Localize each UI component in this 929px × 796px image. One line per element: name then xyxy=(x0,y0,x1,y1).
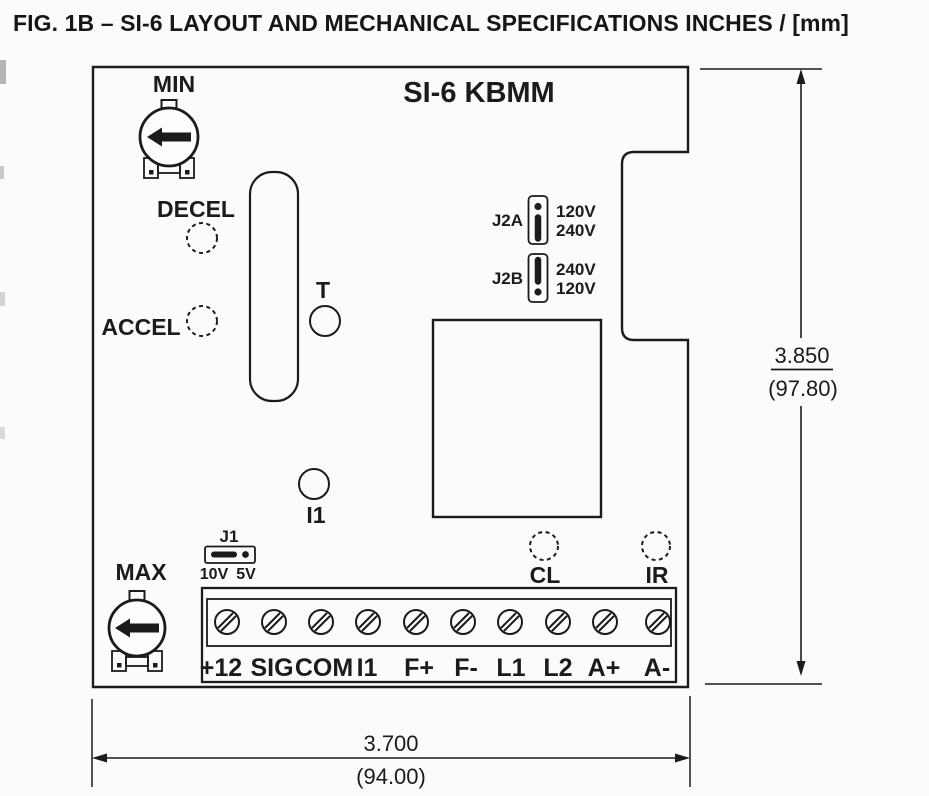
terminal-screw-icon xyxy=(498,610,522,634)
width-mm: (94.00) xyxy=(356,764,426,789)
accel-trimpot-hole: ACCEL xyxy=(101,306,217,340)
figure-page: FIG. 1B – SI-6 LAYOUT AND MECHANICAL SPE… xyxy=(0,0,929,796)
j2b-jumper: J2B 240V 120V xyxy=(492,254,597,302)
scan-smudge xyxy=(0,427,5,439)
j2b-label: J2B xyxy=(492,269,523,288)
height-mm: (97.80) xyxy=(768,376,838,401)
scan-smudge xyxy=(0,166,4,179)
cl-label: CL xyxy=(530,562,561,588)
decel-trimpot-hole: DECEL xyxy=(157,196,235,253)
terminal-label: L1 xyxy=(496,654,525,682)
terminal-strip: +12 SIG COM I1 F+ F- L1 L2 A+ A- xyxy=(200,588,676,682)
ir-trimpot-hole: IR xyxy=(642,532,670,588)
transformer-outline xyxy=(433,320,601,517)
accel-label: ACCEL xyxy=(101,314,180,340)
j2b-pin-dot xyxy=(534,288,541,295)
pot-bracket xyxy=(126,657,148,666)
terminal-screw-icon xyxy=(215,610,239,634)
t-circle xyxy=(310,306,340,336)
terminal-label: I1 xyxy=(357,654,378,682)
scan-smudge xyxy=(0,60,6,84)
j1-jumper: J1 10V 5V xyxy=(200,527,256,583)
pot-leg-hole xyxy=(149,170,154,175)
board-name: SI-6 KBMM xyxy=(403,77,554,109)
terminal-screw-icon xyxy=(309,610,333,634)
terminal-screw-icon xyxy=(356,610,380,634)
j1-left-option: 10V xyxy=(200,566,229,583)
i1-circle xyxy=(299,469,329,499)
pot-leg-hole xyxy=(117,663,122,668)
decel-circle xyxy=(187,223,217,253)
terminal-label: F- xyxy=(454,654,478,682)
width-dimension: 3.700 (94.00) xyxy=(92,696,690,789)
down-arrow-icon xyxy=(797,661,806,676)
terminal-screw-icon xyxy=(404,610,428,634)
j2b-bottom-option: 120V xyxy=(556,279,596,298)
scan-smudge xyxy=(0,292,5,306)
ir-circle xyxy=(642,532,670,560)
min-potentiometer: MIN xyxy=(140,71,198,178)
heatsink-slot xyxy=(250,172,298,401)
terminal-screw-icon xyxy=(262,610,286,634)
height-inches: 3.850 xyxy=(774,343,829,368)
cl-trimpot-hole: CL xyxy=(530,532,561,588)
j2b-top-option: 240V xyxy=(556,260,596,279)
width-inches: 3.700 xyxy=(363,731,418,756)
j2a-pin-dot xyxy=(534,203,541,210)
i1-trimpot-hole: I1 xyxy=(299,469,329,528)
si6-layout-diagram: SI-6 KBMM MIN DECEL ACCEL T xyxy=(0,0,929,796)
terminal-screw-icon xyxy=(593,610,617,634)
terminal-label: L2 xyxy=(543,654,572,682)
terminal-label: SIG xyxy=(250,654,293,682)
terminal-screw-icon xyxy=(451,610,475,634)
j2a-jumper: J2A 120V 240V xyxy=(492,196,597,244)
j1-right-option: 5V xyxy=(236,566,256,583)
t-trimpot-hole: T xyxy=(310,277,340,336)
terminal-screw-icon xyxy=(546,610,570,634)
height-dimension: 3.850 (97.80) xyxy=(700,69,838,684)
t-label: T xyxy=(316,277,330,303)
left-arrow-icon xyxy=(92,754,107,763)
right-arrow-icon xyxy=(675,754,690,763)
j1-label: J1 xyxy=(220,527,239,546)
j2a-label: J2A xyxy=(492,211,523,230)
terminal-label: +12 xyxy=(200,654,242,682)
pot-leg-hole xyxy=(185,170,190,175)
ir-label: IR xyxy=(646,562,669,588)
accel-circle xyxy=(187,306,217,336)
terminal-label: A- xyxy=(644,654,670,682)
terminal-screw-icon xyxy=(646,610,670,634)
i1-label: I1 xyxy=(306,502,325,528)
terminal-label: COM xyxy=(295,654,353,682)
j2a-bottom-option: 240V xyxy=(556,221,596,240)
cl-circle xyxy=(530,532,558,560)
j1-pin-dot xyxy=(242,551,249,558)
terminal-label: A+ xyxy=(588,654,621,682)
pot-leg-hole xyxy=(153,663,158,668)
decel-label: DECEL xyxy=(157,196,235,222)
terminal-label: F+ xyxy=(404,654,434,682)
scan-artifacts xyxy=(0,60,6,439)
min-label: MIN xyxy=(153,71,195,97)
j2a-top-option: 120V xyxy=(556,202,596,221)
up-arrow-icon xyxy=(797,69,806,84)
max-potentiometer: MAX xyxy=(109,559,167,671)
max-label: MAX xyxy=(115,559,167,585)
